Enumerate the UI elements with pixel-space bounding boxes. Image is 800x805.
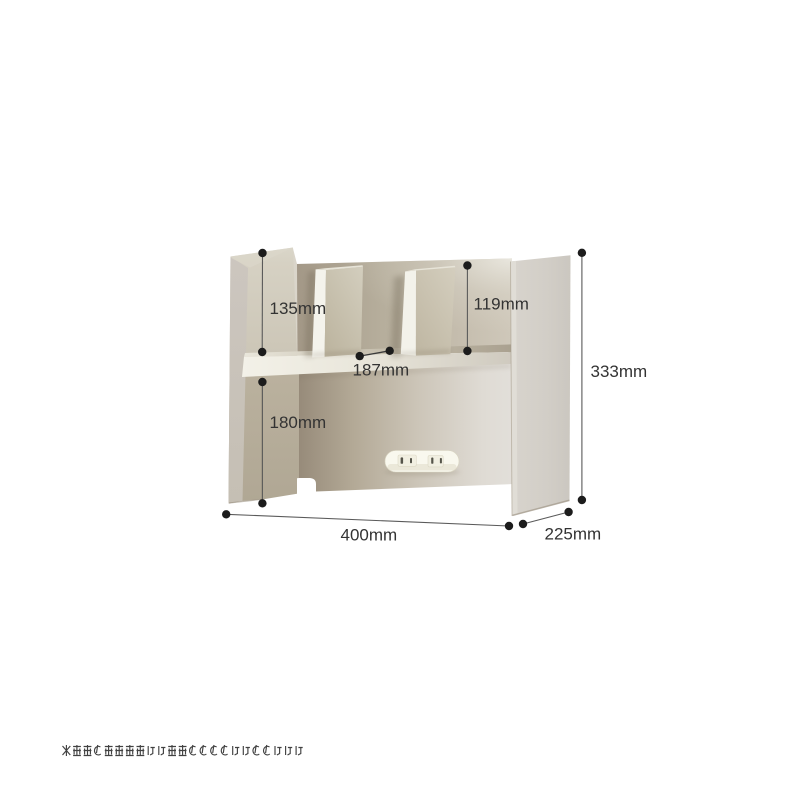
svg-text:119mm: 119mm xyxy=(474,295,529,314)
svg-text:225mm: 225mm xyxy=(545,525,602,544)
svg-text:400mm: 400mm xyxy=(341,526,398,545)
svg-text:187mm: 187mm xyxy=(353,361,410,380)
svg-text:333mm: 333mm xyxy=(591,362,648,381)
svg-text:180mm: 180mm xyxy=(270,413,327,432)
svg-text:135mm: 135mm xyxy=(270,299,327,318)
